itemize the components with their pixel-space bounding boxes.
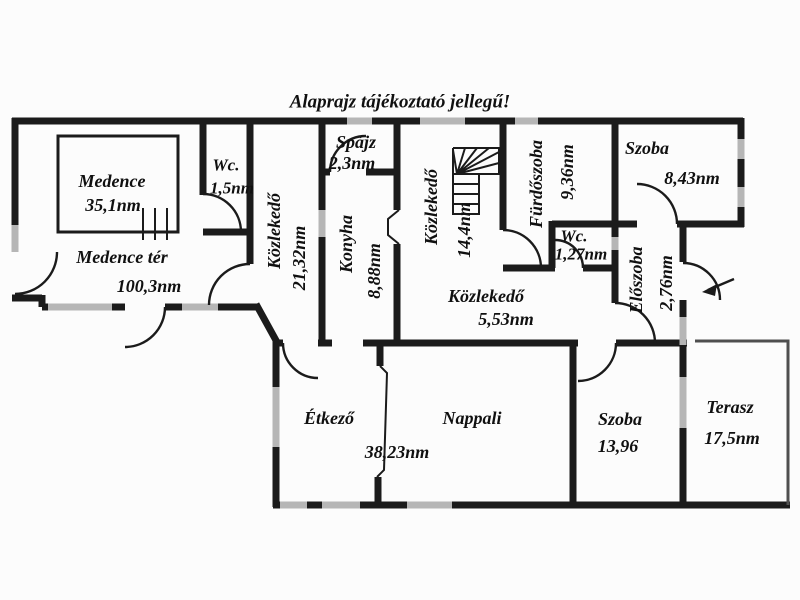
- room-label-furdoszoba: Fürdőszoba: [527, 140, 545, 228]
- room-area-medence-ter: 100,3nm: [117, 277, 182, 295]
- room-label-szoba-2: Szoba: [598, 410, 642, 428]
- room-area-kozlekedo-3: 5,53nm: [478, 310, 534, 328]
- room-label-eloszoba: Előszoba: [627, 246, 645, 313]
- room-area-kozlekedo-1: 21,32nm: [290, 226, 308, 291]
- room-area-wc-1: 1,5nm: [210, 180, 254, 197]
- room-label-kozlekedo-1: Közlekedő: [265, 193, 283, 269]
- room-area-nappali: 38,23nm: [365, 443, 430, 461]
- room-label-kozlekedo-3: Közlekedő: [448, 287, 524, 305]
- room-label-wc-2: Wc.: [561, 228, 588, 245]
- floor-plan-page: Alaprajz tájékoztató jellegű! Medence 35…: [0, 0, 800, 600]
- room-label-wc-1: Wc.: [213, 157, 240, 174]
- room-area-konyha: 8,88nm: [365, 243, 383, 299]
- room-area-spajz: 2,3nm: [329, 154, 376, 172]
- room-area-furdoszoba: 9,36nm: [558, 144, 576, 200]
- room-area-szoba-1: 8,43nm: [664, 169, 720, 187]
- floor-plan-drawing: [0, 0, 800, 600]
- room-area-eloszoba: 2,76nm: [657, 255, 675, 311]
- room-label-nappali: Nappali: [442, 409, 501, 427]
- kitchen-hatch-notch: [388, 210, 399, 244]
- room-area-medence: 35,1nm: [85, 196, 141, 214]
- room-label-szoba-1: Szoba: [625, 139, 669, 157]
- room-label-medence: Medence: [79, 172, 146, 190]
- pool-ladder-icon: [143, 208, 167, 240]
- room-label-konyha: Konyha: [337, 215, 355, 273]
- room-label-medence-ter: Medence tér: [76, 248, 167, 266]
- room-area-szoba-2: 13,96: [598, 437, 639, 455]
- room-label-terasz: Terasz: [706, 398, 753, 416]
- room-area-wc-2: 1,27nm: [555, 246, 607, 263]
- room-area-kozlekedo-2: 14,4nm: [455, 202, 473, 258]
- room-area-terasz: 17,5nm: [704, 429, 760, 447]
- room-label-kozlekedo-2: Közlekedő: [422, 169, 440, 245]
- room-label-etkezo: Étkező: [304, 409, 354, 427]
- plan-title: Alaprajz tájékoztató jellegű!: [290, 93, 511, 112]
- room-label-spajz: Spájz: [336, 133, 376, 151]
- terrace-outline: [695, 341, 788, 505]
